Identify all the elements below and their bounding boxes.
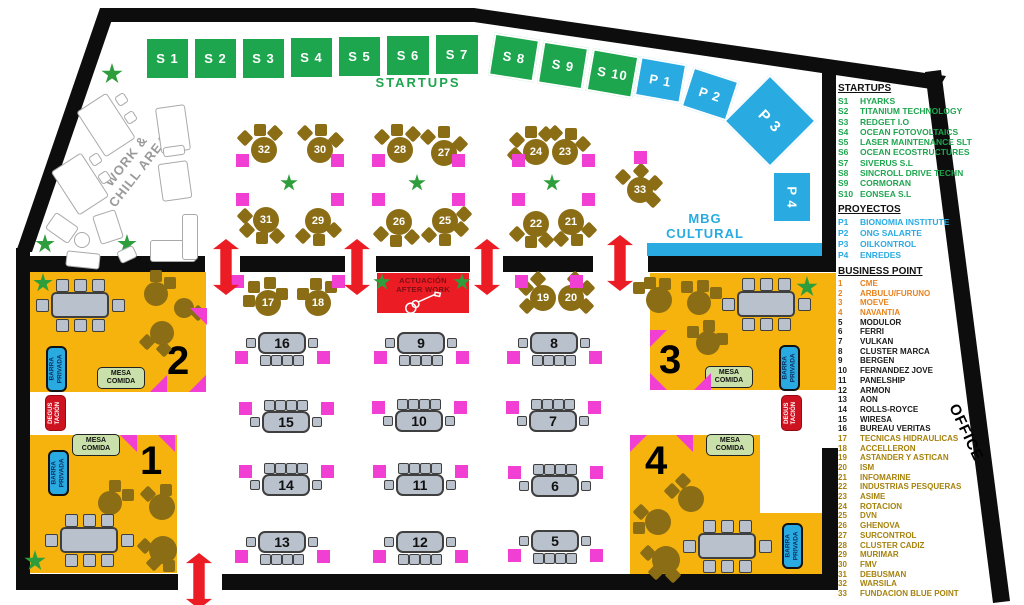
chair: [101, 554, 114, 567]
pink-marker: [508, 549, 521, 562]
legend-code: 1: [838, 279, 860, 289]
round-table-31: 31: [253, 207, 279, 233]
chair: [633, 522, 645, 534]
chair: [430, 399, 441, 410]
chair: [525, 126, 537, 138]
legend-row: 23ASIME: [838, 492, 1022, 502]
booth-label: S 8: [502, 48, 527, 66]
legend-row: S5LASER MAINTENANCE SLT: [838, 137, 1022, 147]
pink-marker: [235, 351, 248, 364]
legend-row: 21INFOMARINE: [838, 473, 1022, 483]
chair: [445, 416, 455, 426]
pink-marker: [455, 550, 468, 563]
round-table-29: 29: [305, 208, 331, 234]
legend-name: ROLLS-ROYCE: [860, 405, 918, 415]
chair: [760, 278, 773, 291]
legend-name: TECNICAS HIDRAULICAS: [860, 434, 958, 444]
chair: [256, 232, 268, 244]
legend-code: 17: [838, 434, 860, 444]
degustacion-text: DEGUS TACIÓN: [784, 402, 798, 425]
legend-code: 28: [838, 541, 860, 551]
booth-label: P 3: [755, 106, 785, 136]
round-table: [98, 491, 122, 515]
work-furniture: [65, 250, 100, 269]
legend-code: 24: [838, 502, 860, 512]
legend-code: S9: [838, 178, 860, 188]
mbg-cultural-bar: [647, 243, 822, 256]
pink-marker: [512, 154, 525, 167]
chair: [410, 355, 421, 366]
chair: [533, 553, 544, 564]
legend-name: EONSEA S.L: [860, 189, 911, 199]
round-table: [652, 546, 680, 574]
legend-proyectos-list: P1BIONOMIA INSTITUTEP2ONG SALARTEP3OILKO…: [838, 217, 1022, 261]
mesa-comida-zone2: MESA COMIDA: [97, 367, 145, 389]
legend-code: 26: [838, 521, 860, 531]
chair: [264, 277, 276, 289]
booth-label: S 1: [156, 51, 179, 66]
degustacion-right: DEGUS TACIÓN: [781, 395, 802, 431]
chair: [45, 534, 58, 547]
chair: [798, 298, 811, 311]
pink-marker: [317, 550, 330, 563]
pink-marker: [372, 401, 385, 414]
round-table: [149, 536, 177, 564]
chair: [297, 400, 308, 411]
round-table-26: 26: [386, 209, 412, 235]
chair: [275, 463, 286, 474]
zone-3-number: 3: [659, 340, 681, 380]
chair: [566, 464, 577, 475]
chair: [721, 560, 734, 573]
booth-label: S 10: [596, 63, 629, 83]
legend-code: 31: [838, 570, 860, 580]
pink-marker: [506, 401, 519, 414]
chair: [264, 400, 275, 411]
chair: [390, 235, 402, 247]
chair: [271, 355, 282, 366]
chair: [250, 480, 260, 490]
legend-code: 15: [838, 415, 860, 425]
legend-row: 12ARMON: [838, 386, 1022, 396]
chair: [74, 319, 87, 332]
chair: [531, 399, 542, 410]
chair: [56, 279, 69, 292]
legend-code: S2: [838, 106, 860, 116]
chair: [439, 234, 451, 246]
chair: [310, 278, 322, 290]
legend-row: 28CLUSTER CADIZ: [838, 541, 1022, 551]
pink-marker: [512, 193, 525, 206]
booth-s3: S 3: [241, 37, 286, 80]
legend-name: INDUSTRIAS PESQUERAS: [860, 482, 961, 492]
barra-privada-text: BARRA PRIVADA: [51, 459, 67, 488]
legend-name: SURCONTROL: [860, 531, 916, 541]
legend-row: 24ROTACION: [838, 502, 1022, 512]
barra-privada-zone1: BARRA PRIVADA: [48, 450, 69, 496]
table-8: 8: [530, 332, 578, 354]
meeting-table: [60, 527, 118, 553]
legend-row: 3MOEVE: [838, 298, 1022, 308]
legend-name: CLUSTER MARCA: [860, 347, 930, 357]
chair: [542, 399, 553, 410]
round-table: [696, 331, 720, 355]
booth-label: S 5: [348, 49, 371, 64]
legend-code: 2: [838, 289, 860, 299]
chair: [544, 553, 555, 564]
mesa-comida-text: MESA COMIDA: [716, 437, 744, 453]
chair: [74, 279, 87, 292]
legend-code: P3: [838, 239, 860, 250]
legend-code: 13: [838, 395, 860, 405]
table-14: 14: [262, 474, 310, 496]
chair: [122, 489, 134, 501]
pink-marker: [373, 550, 386, 563]
legend-code: 21: [838, 473, 860, 483]
legend-name: SINCROLL DRIVE TECHN: [860, 168, 963, 178]
legend-code: 29: [838, 550, 860, 560]
legend-name: ROTACION: [860, 502, 902, 512]
chair: [260, 554, 271, 565]
legend-startups-header: STARTUPS: [838, 83, 1022, 94]
pink-marker: [588, 401, 601, 414]
zone-4-number: 4: [645, 441, 667, 481]
chair: [271, 554, 282, 565]
legend-code: S4: [838, 127, 860, 137]
pink-marker: [452, 154, 465, 167]
chair: [778, 318, 791, 331]
chair: [398, 463, 409, 474]
legend-row: S7SIVERUS S.L: [838, 158, 1022, 168]
chair: [544, 464, 555, 475]
chair: [739, 560, 752, 573]
legend-name: BIONOMIA INSTITUTE: [860, 217, 949, 228]
legend-row: 7VULKAN: [838, 337, 1022, 347]
chair: [260, 355, 271, 366]
pink-marker: [452, 193, 465, 206]
legend-name: ISM: [860, 463, 874, 473]
work-furniture: [74, 232, 90, 248]
chair: [533, 464, 544, 475]
round-table-33: 33: [627, 177, 653, 203]
booth-label: S 6: [397, 48, 420, 63]
legend-row: 9BERGEN: [838, 356, 1022, 366]
chair: [564, 399, 575, 410]
startups-banner: STARTUPS: [368, 75, 468, 90]
legend-code: S7: [838, 158, 860, 168]
legend-name: INFOMARINE: [860, 473, 911, 483]
legend-name: WIRESA: [860, 415, 892, 425]
chair: [250, 417, 260, 427]
chair: [385, 338, 395, 348]
legend-row: 2ARBULU/FURUNO: [838, 289, 1022, 299]
booth-s8: S 8: [488, 33, 540, 83]
pink-marker: [507, 351, 520, 364]
chair: [722, 298, 735, 311]
chair: [246, 338, 256, 348]
pink-marker: [331, 154, 344, 167]
round-table-17: 17: [255, 290, 281, 316]
legend-code: 33: [838, 589, 860, 599]
booth-s10: S 10: [586, 48, 640, 99]
legend-code: 18: [838, 444, 860, 454]
chair: [397, 399, 408, 410]
round-table: [144, 282, 168, 306]
chair: [286, 400, 297, 411]
legend-row: S3REDGET I.O: [838, 117, 1022, 127]
chair: [571, 234, 583, 246]
chair: [243, 295, 255, 307]
barra-privada-zone4: BARRA PRIVADA: [782, 523, 803, 569]
mesa-comida-text: MESA COMIDA: [82, 437, 110, 453]
meeting-table: [698, 533, 756, 559]
chair: [391, 124, 403, 136]
legend-code: S3: [838, 117, 860, 127]
mesa-comida-text: MESA COMIDA: [715, 369, 743, 385]
table-16: 16: [258, 332, 306, 354]
chair: [254, 124, 266, 136]
chair: [264, 463, 275, 474]
legend-row: S1HYARKS: [838, 96, 1022, 106]
chair: [246, 537, 256, 547]
chair: [518, 338, 528, 348]
legend-row: 33FUNDACION BLUE POINT: [838, 589, 1022, 599]
pink-marker: [372, 154, 385, 167]
chair: [555, 464, 566, 475]
chair: [308, 338, 318, 348]
chair: [293, 554, 304, 565]
legend-row: 8CLUSTER MARCA: [838, 347, 1022, 357]
chair: [312, 417, 322, 427]
round-table: [678, 486, 704, 512]
chair: [398, 554, 409, 565]
chair: [384, 537, 394, 547]
round-table-21: 21: [558, 209, 584, 235]
round-table-22: 22: [523, 211, 549, 237]
chair: [519, 481, 529, 491]
stage-label: ACTUACIÓN AFTER WORK: [377, 276, 469, 294]
pink-marker: [321, 402, 334, 415]
legend-name: OCEAN ECOSTRUCTURES: [860, 147, 970, 157]
chair: [438, 126, 450, 138]
chair: [581, 536, 591, 546]
legend-name: MODULOR: [860, 318, 901, 328]
legend-name: OILKONTROL: [860, 239, 916, 250]
chair: [633, 282, 645, 294]
chair: [297, 463, 308, 474]
pink-marker: [374, 351, 387, 364]
booth-s5: S 5: [337, 35, 382, 78]
table-10: 10: [395, 410, 443, 432]
round-table: [149, 494, 175, 520]
table-15: 15: [262, 411, 310, 433]
round-table-18: 18: [305, 290, 331, 316]
chair: [580, 338, 590, 348]
booth-label: P 2: [697, 83, 723, 104]
chair: [408, 399, 419, 410]
chair: [555, 553, 566, 564]
legend-row: P3OILKONTROL: [838, 239, 1022, 250]
legend-business-header: BUSINESS POINT: [838, 266, 1022, 277]
legend-row: 15WIRESA: [838, 415, 1022, 425]
table-6: 6: [531, 475, 579, 497]
mesa-comida-zone4: MESA COMIDA: [706, 434, 754, 456]
round-table-19: 19: [530, 285, 556, 311]
booth-s7: S 7: [434, 33, 480, 76]
legend-name: ASTANDER Y ASTICAN: [860, 453, 949, 463]
pink-marker: [508, 466, 521, 479]
booth-label: S 7: [446, 47, 469, 62]
chair: [409, 463, 420, 474]
legend-name: BUREAU VERITAS: [860, 424, 931, 434]
barra-privada-text: BARRA PRIVADA: [785, 532, 801, 561]
chair: [581, 481, 591, 491]
legend-code: 4: [838, 308, 860, 318]
chair: [293, 355, 304, 366]
legend-row: S8SINCROLL DRIVE TECHN: [838, 168, 1022, 178]
pink-marker: [570, 275, 583, 288]
pink-marker: [373, 465, 386, 478]
chair: [121, 534, 134, 547]
booth-s2: S 2: [193, 37, 238, 80]
legend-code: 25: [838, 511, 860, 521]
chair: [446, 537, 456, 547]
legend-row: 5MODULOR: [838, 318, 1022, 328]
booth-label: S 2: [204, 51, 227, 66]
mesa-comida-zone3: MESA COMIDA: [705, 366, 753, 388]
chair: [446, 480, 456, 490]
barra-privada-zone2: BARRA PRIVADA: [46, 346, 67, 392]
chair: [286, 463, 297, 474]
booth-s9: S 9: [537, 41, 589, 91]
legend-name: LASER MAINTENANCE SLT: [860, 137, 972, 147]
chair: [554, 355, 565, 366]
legend-row: P2ONG SALARTE: [838, 228, 1022, 239]
legend-row: 16BUREAU VERITAS: [838, 424, 1022, 434]
zone-1-number: 1: [140, 441, 162, 481]
legend-row: 26GHENOVA: [838, 521, 1022, 531]
pink-marker: [236, 193, 249, 206]
chair: [399, 355, 410, 366]
chair: [759, 540, 772, 553]
table-7: 7: [529, 410, 577, 432]
legend-code: 11: [838, 376, 860, 386]
legend-code: 8: [838, 347, 860, 357]
chair: [92, 319, 105, 332]
booth-label: S 3: [252, 51, 275, 66]
barra-privada-zone3: BARRA PRIVADA: [779, 345, 800, 391]
pink-marker: [456, 351, 469, 364]
table-12: 12: [396, 531, 444, 553]
chair: [313, 234, 325, 246]
legend-name: ARMON: [860, 386, 890, 396]
legend-code: 23: [838, 492, 860, 502]
pink-marker: [582, 193, 595, 206]
legend-row: S6OCEAN ECOSTRUCTURES: [838, 147, 1022, 157]
pink-marker: [590, 549, 603, 562]
legend-name: FMV: [860, 560, 877, 570]
chair: [409, 554, 420, 565]
chair: [543, 355, 554, 366]
legend-row: 25DVN: [838, 511, 1022, 521]
legend-code: 7: [838, 337, 860, 347]
chair: [65, 514, 78, 527]
booth-s1: S 1: [145, 37, 190, 80]
chair: [565, 355, 576, 366]
pink-marker: [589, 351, 602, 364]
legend-row: 11PANELSHIP: [838, 376, 1022, 386]
legend-name: AON: [860, 395, 878, 405]
legend-code: S8: [838, 168, 860, 178]
pink-marker: [372, 193, 385, 206]
pink-marker: [236, 154, 249, 167]
legend-code: 20: [838, 463, 860, 473]
chair: [566, 553, 577, 564]
pink-marker: [331, 193, 344, 206]
chair: [282, 355, 293, 366]
legend-row: S4OCEAN FOTOVOLTAICS: [838, 127, 1022, 137]
pink-marker: [582, 154, 595, 167]
legend-name: BERGEN: [860, 356, 894, 366]
chair: [703, 560, 716, 573]
legend-code: 14: [838, 405, 860, 415]
legend-code: 27: [838, 531, 860, 541]
chair: [553, 399, 564, 410]
legend-row: 29MURIMAR: [838, 550, 1022, 560]
legend-name: ARBULU/FURUNO: [860, 289, 930, 299]
legend-name: ASIME: [860, 492, 885, 502]
legend-name: ACCELLERON: [860, 444, 916, 454]
legend-proyectos-header: PROYECTOS: [838, 204, 1022, 215]
chair: [517, 416, 527, 426]
round-table-24: 24: [523, 139, 549, 165]
pink-marker: [634, 151, 647, 164]
round-table-25: 25: [432, 208, 458, 234]
stage-actuacion-after-work: ACTUACIÓN AFTER WORK: [377, 273, 469, 313]
legend-startups-list: S1HYARKSS2TITANIUM TECHNOLOGYS3REDGET I.…: [838, 96, 1022, 199]
legend-row: 1CME: [838, 279, 1022, 289]
chair: [275, 400, 286, 411]
legend-code: S5: [838, 137, 860, 147]
chair: [681, 281, 693, 293]
chair: [150, 270, 162, 282]
round-table-32: 32: [251, 137, 277, 163]
chair: [312, 480, 322, 490]
chair: [525, 236, 537, 248]
legend-name: CME: [860, 279, 878, 289]
degustacion-text: DEGUS TACIÓN: [48, 402, 62, 425]
chair: [83, 514, 96, 527]
barra-privada-text: BARRA PRIVADA: [782, 354, 798, 383]
legend-name: GHENOVA: [860, 521, 900, 531]
round-table: [646, 287, 672, 313]
legend-name: DEBUSMAN: [860, 570, 906, 580]
legend-row: 4NAVANTIA: [838, 308, 1022, 318]
work-furniture: [158, 160, 193, 202]
round-table: [645, 509, 671, 535]
legend-name: MURIMAR: [860, 550, 899, 560]
legend-name: FUNDACION BLUE POINT: [860, 589, 959, 599]
legend-panel: STARTUPS S1HYARKSS2TITANIUM TECHNOLOGYS3…: [838, 83, 1022, 599]
legend-row: 27SURCONTROL: [838, 531, 1022, 541]
chair: [83, 554, 96, 567]
chair: [420, 554, 431, 565]
legend-code: P2: [838, 228, 860, 239]
pink-marker: [455, 465, 468, 478]
legend-code: S1: [838, 96, 860, 106]
legend-row: P4ENREDES: [838, 250, 1022, 261]
legend-business-list: 1CME2ARBULU/FURUNO3MOEVE4NAVANTIA5MODULO…: [838, 279, 1022, 599]
